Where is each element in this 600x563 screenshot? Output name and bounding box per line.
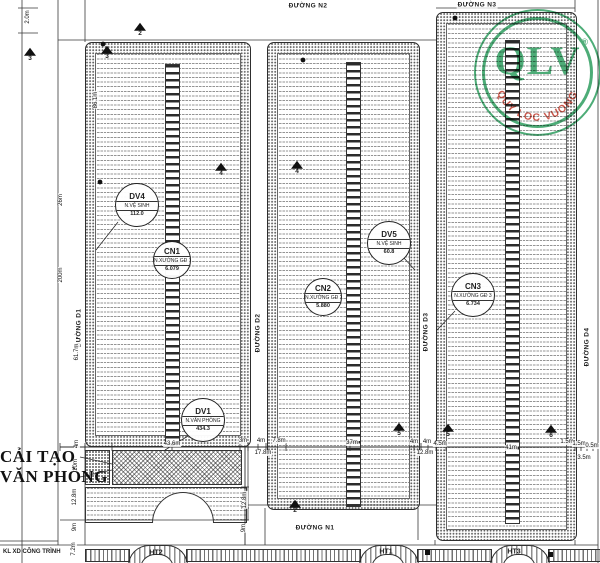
road-label-duong-d2: ĐƯỜNG D2	[255, 313, 262, 354]
dimension-label: 26m	[58, 194, 64, 207]
culvert-label-ht3: HT3	[507, 549, 520, 556]
balloon-code: CN3	[452, 282, 494, 292]
section-marker: 6	[545, 425, 557, 440]
section-marker: 4	[215, 163, 227, 178]
balloon-name: N.VỆ SINH	[116, 202, 158, 211]
renovation-note-line2: VĂN PHÒNG	[0, 467, 108, 487]
balloon-area: 60.8	[368, 249, 410, 256]
section-marker-number: 2	[138, 31, 142, 38]
road-label-duong-d3: ĐƯỜNG D3	[423, 312, 430, 353]
dimension-label: 41m	[505, 445, 518, 451]
office-renovation-zone	[112, 450, 242, 485]
dimension-label: 43.6m	[163, 441, 181, 447]
bottom-wall-band	[186, 549, 361, 562]
dimension-label: 9m	[72, 522, 78, 531]
road-label-duong-n3: ĐƯỜNG N3	[457, 2, 498, 9]
section-marker: 3	[101, 46, 113, 61]
section-marker-number: 4	[219, 171, 223, 178]
balloon-dv4: DV4 N.VỆ SINH 112.0	[115, 183, 159, 227]
dimension-label: 200m	[58, 267, 64, 283]
dimension-label: 86.1m	[93, 91, 99, 109]
section-marker: 4	[291, 161, 303, 176]
dimension-label: 12.8m	[72, 488, 78, 506]
balloon-area: 5.880	[305, 303, 341, 310]
dimension-label: 7.8m	[272, 438, 286, 444]
dimension-label: 4m	[422, 439, 431, 445]
dimension-label: 12.8m	[242, 491, 248, 509]
balloon-cn1: CN1 N.XƯỞNG GĐ 1 6.079	[153, 241, 191, 279]
road-label-duong-n1: ĐƯỜNG N1	[295, 525, 336, 532]
section-marker: 2	[289, 500, 301, 515]
dimension-label: 37m	[346, 440, 359, 446]
balloon-code: CN2	[305, 284, 341, 294]
bottom-wall-band	[417, 549, 492, 562]
balloon-dv1: DV1 N.VĂN PHÒNG 434.3	[181, 398, 225, 442]
balloon-cn3: CN3 N.XƯỞNG GĐ 3 6.734	[451, 273, 495, 317]
stamp-tagline-text: QUY LOC VUONG	[494, 89, 581, 124]
balloon-code: CN1	[154, 247, 190, 257]
dimension-label: 3m	[238, 438, 247, 444]
section-marker-number: 5	[397, 431, 401, 438]
balloon-code: DV5	[368, 230, 410, 240]
section-marker-number: 3	[28, 56, 32, 63]
balloon-area: 6.734	[452, 301, 494, 308]
culvert-label-ht1: HT1	[379, 549, 392, 556]
factory-block-2-floor	[277, 53, 410, 499]
qlv-stamp-logo: QLV ® QUY LOC VUONG	[474, 9, 600, 136]
dimension-label: 12.8m	[416, 450, 434, 456]
culvert-label-ht2: HT2	[149, 550, 162, 557]
balloon-name: N.XƯỞNG GĐ 2	[305, 294, 341, 303]
dimension-label: 4m	[409, 439, 418, 445]
section-marker-number: 5	[446, 432, 450, 439]
bottom-wall-band	[548, 549, 600, 562]
dimension-label: 9m	[241, 523, 247, 532]
site-plan-drawing: ĐƯỜNG N2 ĐƯỜNG N3 ĐƯỜNG N1 ĐƯỜNG D1 ĐƯỜN…	[0, 0, 600, 563]
balloon-area: 434.3	[182, 426, 224, 433]
stamp-tagline-arc: QUY LOC VUONG	[474, 9, 600, 136]
dimension-label: 61.7m	[74, 343, 80, 361]
section-marker-number: 4	[295, 169, 299, 176]
renovation-note-line1: CẢI TẠO	[0, 447, 75, 467]
balloon-dv5: DV5 N.VỆ SINH 60.8	[367, 221, 411, 265]
dimension-label: 17.8m	[254, 450, 272, 456]
dimension-label: 4m	[256, 438, 265, 444]
balloon-cn2: CN2 N.XƯỞNG GĐ 2 5.880	[304, 278, 342, 316]
balloon-name: N.XƯỞNG GĐ 1	[154, 257, 190, 266]
factory-block-2	[267, 42, 420, 510]
section-marker: 5	[442, 424, 454, 439]
section-marker-number: 6	[549, 433, 553, 440]
road-label-duong-n2: ĐƯỜNG N2	[288, 3, 329, 10]
section-marker-number: 3	[105, 54, 109, 61]
balloon-name: N.VỆ SINH	[368, 240, 410, 249]
balloon-area: 6.079	[154, 266, 190, 273]
title-block-label: KL XD CÔNG TRÌNH	[3, 549, 61, 555]
dimension-label: 4.5m	[433, 441, 447, 447]
balloon-code: DV4	[116, 192, 158, 202]
balloon-name: N.VĂN PHÒNG	[182, 417, 224, 426]
road-label-duong-d4: ĐƯỜNG D4	[584, 327, 591, 368]
balloon-name: N.XƯỞNG GĐ 3	[452, 292, 494, 301]
bottom-wall-band	[85, 549, 130, 562]
section-marker: 5	[393, 423, 405, 438]
section-marker: 2	[134, 23, 146, 38]
balloon-code: DV1	[182, 407, 224, 417]
dimension-label: 0.5m	[585, 443, 599, 449]
balloon-area: 112.0	[116, 211, 158, 218]
dimension-label: 7.2m	[71, 542, 77, 556]
dimension-label: 3.5m	[577, 455, 591, 461]
dimension-label: 2.0m	[25, 10, 31, 24]
section-marker: 3	[24, 48, 36, 63]
section-marker-number: 2	[293, 508, 297, 515]
svg-text:QUY LOC VUONG: QUY LOC VUONG	[494, 89, 581, 124]
